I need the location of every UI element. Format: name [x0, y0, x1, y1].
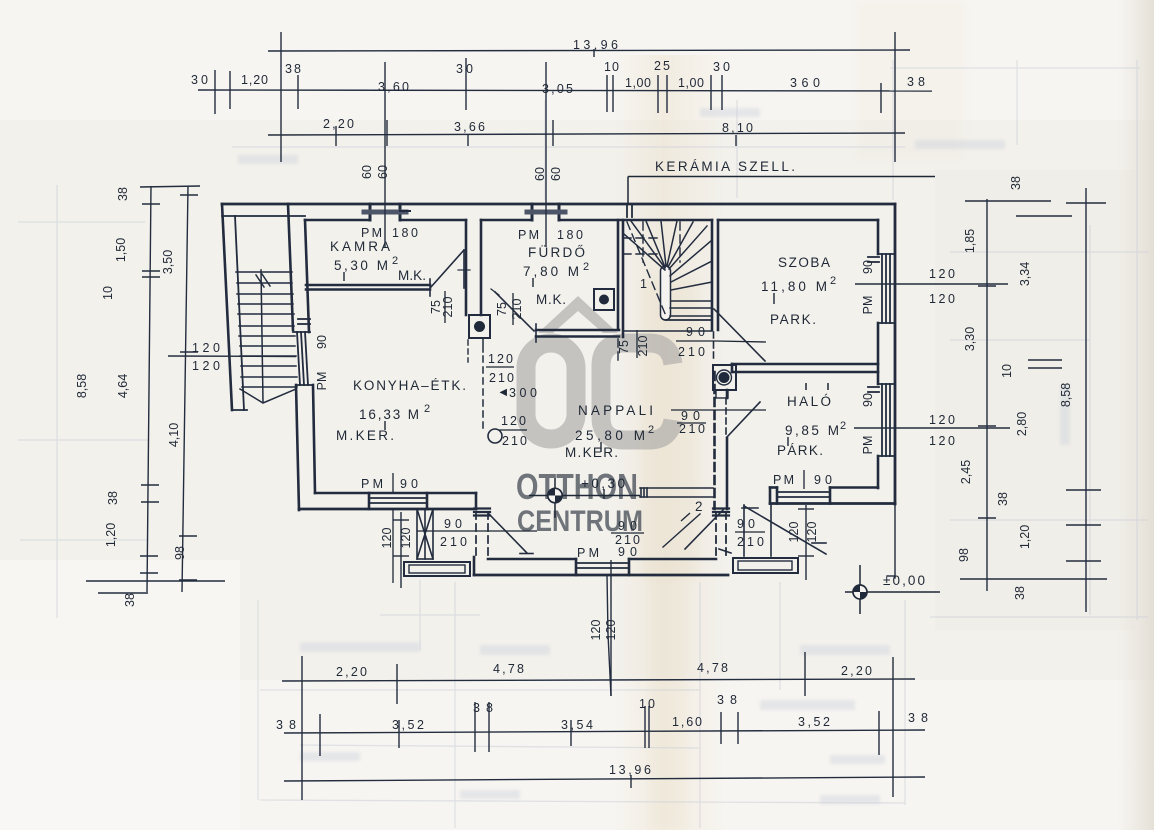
svg-text:120: 120 [929, 292, 955, 306]
svg-text:210: 210 [441, 297, 455, 318]
svg-text:120: 120 [380, 528, 394, 549]
svg-text:PM: PM [773, 473, 794, 487]
svg-text:2: 2 [583, 261, 589, 273]
svg-text:2: 2 [840, 420, 846, 432]
svg-text:8,58: 8,58 [75, 374, 89, 398]
svg-text:13,96: 13,96 [609, 763, 651, 777]
svg-text:210: 210 [489, 371, 514, 385]
svg-text:3,54: 3,54 [561, 718, 593, 732]
svg-text:210: 210 [440, 535, 467, 549]
svg-text:120: 120 [192, 341, 220, 355]
svg-text:KONYHA–ÉTK.: KONYHA–ÉTK. [353, 378, 466, 393]
svg-text:2: 2 [648, 424, 654, 436]
svg-text:60: 60 [360, 165, 374, 179]
svg-text:210: 210 [679, 422, 705, 436]
svg-text:75: 75 [495, 302, 509, 316]
svg-text:60: 60 [533, 167, 547, 181]
svg-text:1,20: 1,20 [1018, 525, 1032, 549]
svg-text:75: 75 [617, 340, 631, 354]
svg-text:+0,30: +0,30 [581, 476, 625, 491]
svg-text:120: 120 [805, 522, 819, 543]
svg-text:13,96: 13,96 [573, 38, 618, 52]
svg-text:PM: PM [361, 477, 383, 491]
svg-text:2: 2 [392, 255, 398, 267]
svg-text:3,52: 3,52 [392, 718, 424, 732]
svg-text:210: 210 [737, 535, 764, 549]
svg-text:16,33 M: 16,33 M [359, 407, 419, 422]
svg-text:4,78: 4,78 [493, 662, 524, 676]
svg-text:PM: PM [861, 436, 875, 455]
svg-text:PM: PM [361, 226, 382, 240]
svg-text:38: 38 [106, 491, 120, 505]
svg-text:3,52: 3,52 [798, 715, 830, 729]
svg-text:M.K.: M.K. [398, 268, 426, 283]
svg-text:1,85: 1,85 [963, 229, 977, 253]
svg-text:38: 38 [1013, 586, 1027, 600]
svg-text:PÁRK.: PÁRK. [777, 443, 823, 458]
svg-text:90: 90 [861, 260, 875, 274]
svg-text:M.K.: M.K. [536, 292, 566, 307]
svg-text:3,50: 3,50 [161, 250, 175, 274]
svg-text:4,78: 4,78 [697, 661, 728, 675]
svg-text:4,64: 4,64 [116, 374, 130, 398]
svg-text:300: 300 [509, 386, 537, 400]
svg-text:120: 120 [787, 522, 801, 543]
svg-text:3,05: 3,05 [542, 82, 573, 96]
svg-text:8,10: 8,10 [722, 121, 753, 135]
svg-text:2,20: 2,20 [323, 117, 354, 131]
svg-text:SZOBA: SZOBA [778, 255, 830, 270]
svg-text:210: 210 [510, 299, 524, 320]
svg-text:M.KER.: M.KER. [565, 445, 618, 460]
svg-text:3,66: 3,66 [454, 120, 485, 134]
svg-text:3,60: 3,60 [378, 80, 409, 94]
svg-text:120: 120 [929, 413, 955, 427]
svg-text:120: 120 [399, 528, 413, 549]
svg-text:38: 38 [996, 492, 1010, 506]
svg-text:4,10: 4,10 [167, 423, 181, 447]
svg-text:1,00: 1,00 [625, 76, 651, 90]
svg-text:120: 120 [604, 620, 618, 641]
svg-text:210: 210 [636, 336, 650, 357]
svg-text:98: 98 [173, 546, 187, 560]
svg-text:120: 120 [929, 434, 955, 448]
svg-text:38: 38 [1009, 176, 1023, 190]
svg-text:PARK.: PARK. [770, 312, 816, 327]
svg-text:KAMRA: KAMRA [330, 239, 390, 254]
svg-text:90: 90 [861, 393, 875, 407]
svg-text:2: 2 [424, 403, 430, 415]
svg-text:38: 38 [116, 187, 130, 201]
svg-text:1,60: 1,60 [672, 715, 702, 729]
svg-text:120: 120 [501, 414, 526, 428]
svg-text:10: 10 [604, 60, 619, 74]
svg-text:3,34: 3,34 [1018, 262, 1032, 286]
svg-text:10: 10 [101, 286, 115, 300]
svg-text:±0,00: ±0,00 [883, 573, 925, 588]
svg-text:2: 2 [830, 275, 836, 287]
svg-text:1,20: 1,20 [104, 523, 118, 547]
svg-text:PM: PM [315, 372, 329, 391]
svg-text:60: 60 [549, 167, 563, 181]
svg-text:1: 1 [640, 277, 647, 291]
svg-text:PM: PM [577, 546, 599, 560]
svg-text:1,20: 1,20 [241, 73, 268, 87]
svg-text:210: 210 [502, 434, 527, 448]
svg-text:210: 210 [678, 345, 705, 359]
svg-text:120: 120 [488, 352, 513, 366]
svg-text:PM: PM [861, 296, 875, 315]
svg-text:98: 98 [957, 548, 971, 562]
svg-text:PM: PM [518, 228, 539, 242]
svg-text:2,20: 2,20 [336, 665, 367, 679]
svg-text:90: 90 [315, 335, 329, 349]
svg-text:2,80: 2,80 [1015, 412, 1029, 436]
svg-text:120: 120 [589, 620, 603, 641]
svg-text:1,00: 1,00 [678, 76, 704, 90]
svg-text:8,58: 8,58 [1059, 383, 1073, 407]
svg-text:180: 180 [392, 226, 418, 240]
svg-text:180: 180 [557, 228, 583, 242]
svg-text:2,20: 2,20 [841, 664, 872, 678]
svg-text:360: 360 [790, 76, 820, 90]
svg-text:60: 60 [376, 165, 390, 179]
svg-text:120: 120 [192, 359, 220, 373]
svg-text:120: 120 [929, 267, 955, 281]
svg-text:3,30: 3,30 [963, 327, 977, 351]
svg-text:10: 10 [1000, 364, 1014, 378]
svg-text:1,50: 1,50 [114, 238, 128, 262]
svg-text:25,80 M: 25,80 M [575, 428, 645, 443]
svg-text:◄: ◄ [497, 385, 509, 399]
svg-text:2,45: 2,45 [959, 460, 973, 484]
svg-text:2: 2 [695, 499, 703, 514]
svg-text:38: 38 [123, 593, 137, 607]
svg-text:11,80 M: 11,80 M [761, 279, 827, 294]
